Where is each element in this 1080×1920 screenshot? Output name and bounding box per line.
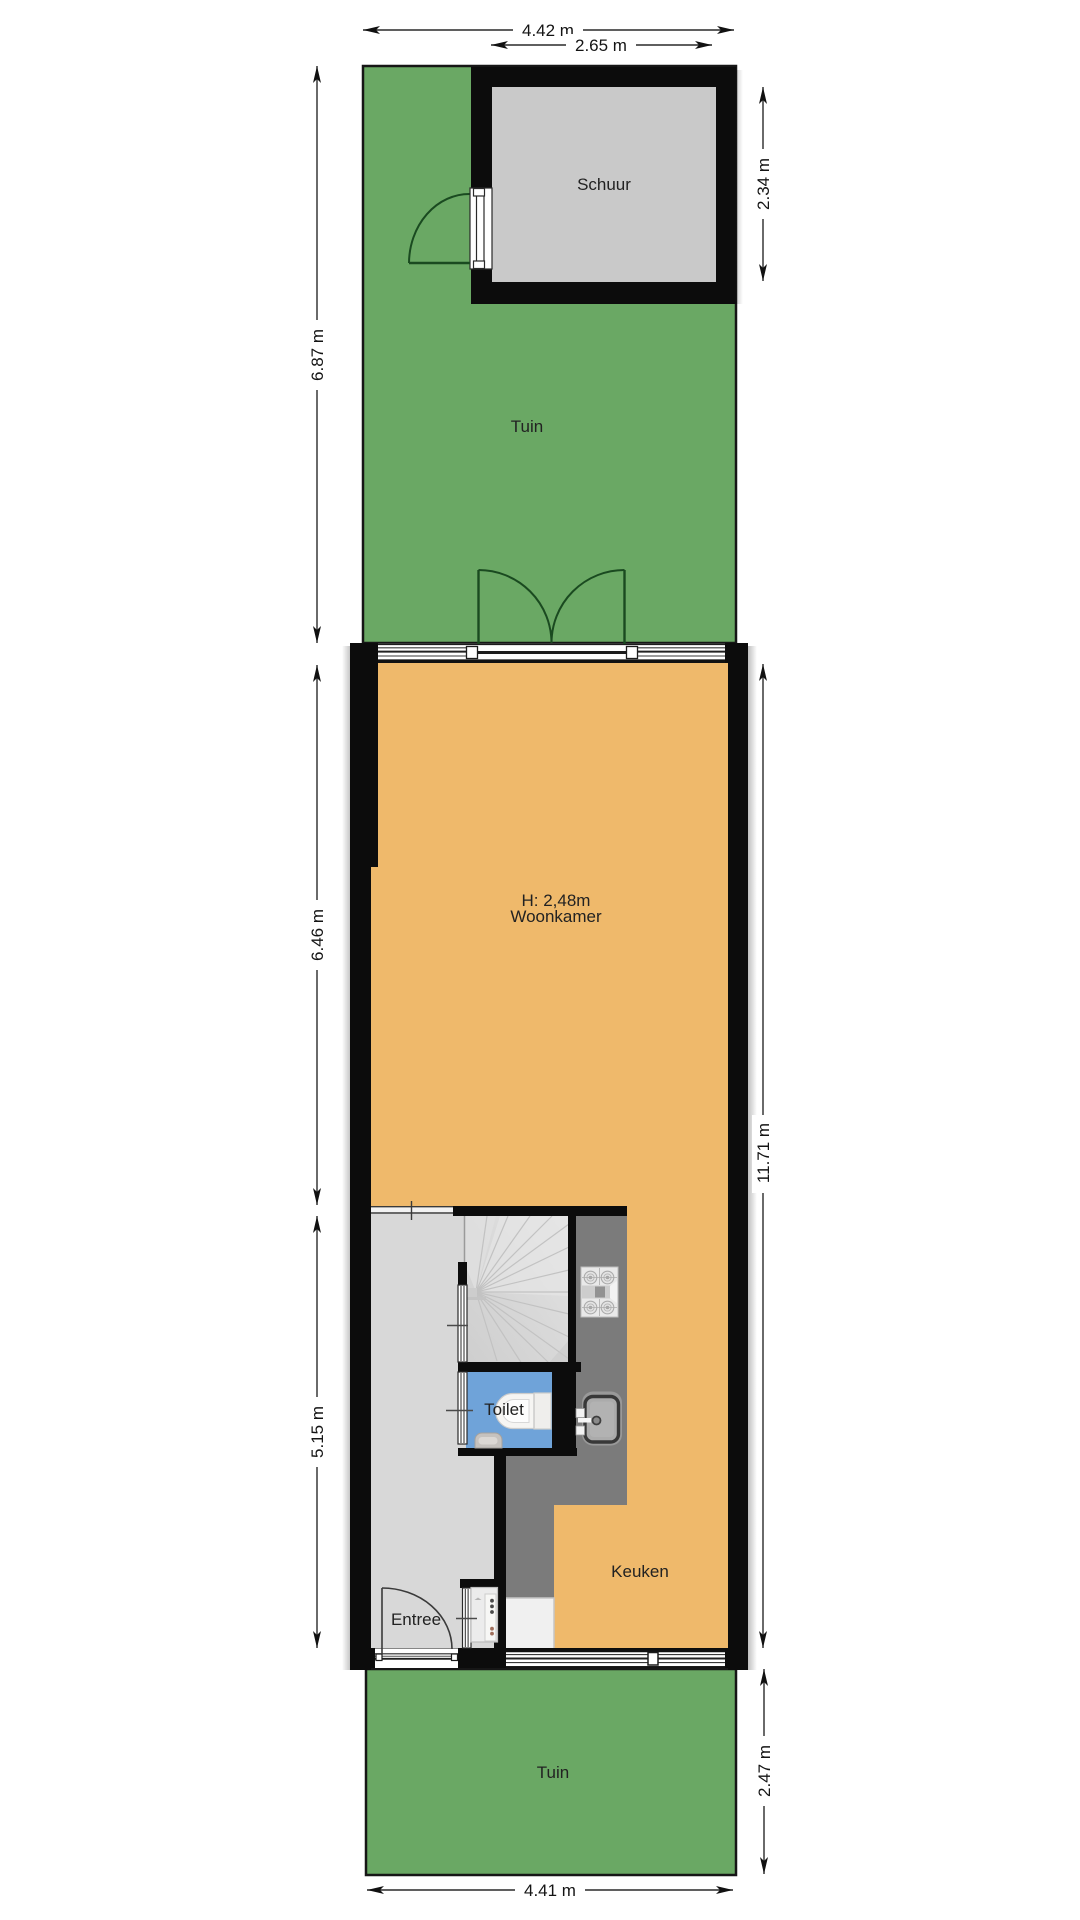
svg-text:Schuur: Schuur	[577, 175, 631, 194]
svg-text:Keuken: Keuken	[611, 1562, 669, 1581]
svg-text:6.46 m: 6.46 m	[308, 909, 327, 961]
svg-text:5.15 m: 5.15 m	[308, 1406, 327, 1458]
svg-text:4.41 m: 4.41 m	[524, 1881, 576, 1900]
svg-text:Toilet: Toilet	[484, 1400, 524, 1419]
svg-text:Tuin: Tuin	[537, 1763, 569, 1782]
svg-text:11.71 m: 11.71 m	[754, 1123, 773, 1183]
svg-text:2.65 m: 2.65 m	[575, 36, 627, 55]
svg-text:2.34 m: 2.34 m	[754, 158, 773, 210]
svg-text:Tuin: Tuin	[511, 417, 543, 436]
svg-text:Woonkamer: Woonkamer	[510, 907, 602, 926]
svg-text:Entree: Entree	[391, 1610, 441, 1629]
svg-text:6.87 m: 6.87 m	[308, 329, 327, 381]
svg-text:2.47 m: 2.47 m	[755, 1745, 774, 1797]
